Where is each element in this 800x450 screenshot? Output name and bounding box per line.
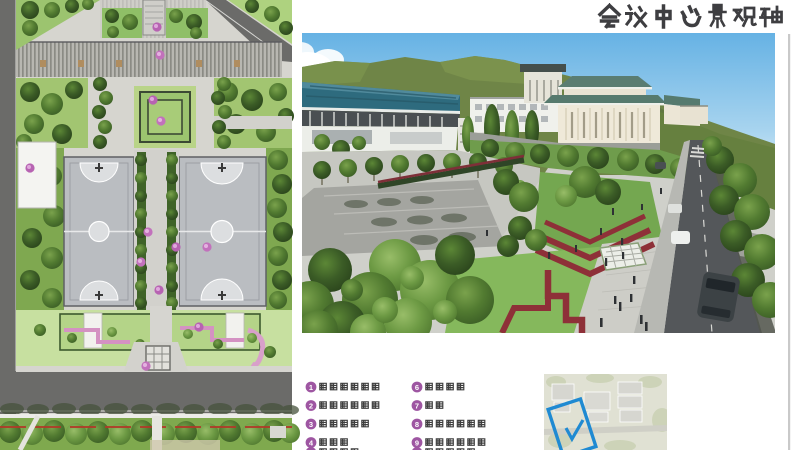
svg-text:6: 6 [415, 383, 419, 392]
svg-text:2: 2 [309, 401, 313, 410]
svg-text:7: 7 [415, 401, 419, 410]
svg-text:3: 3 [309, 420, 313, 429]
svg-text:9: 9 [415, 438, 419, 447]
svg-text:8: 8 [415, 420, 419, 429]
svg-text:1: 1 [309, 383, 313, 392]
